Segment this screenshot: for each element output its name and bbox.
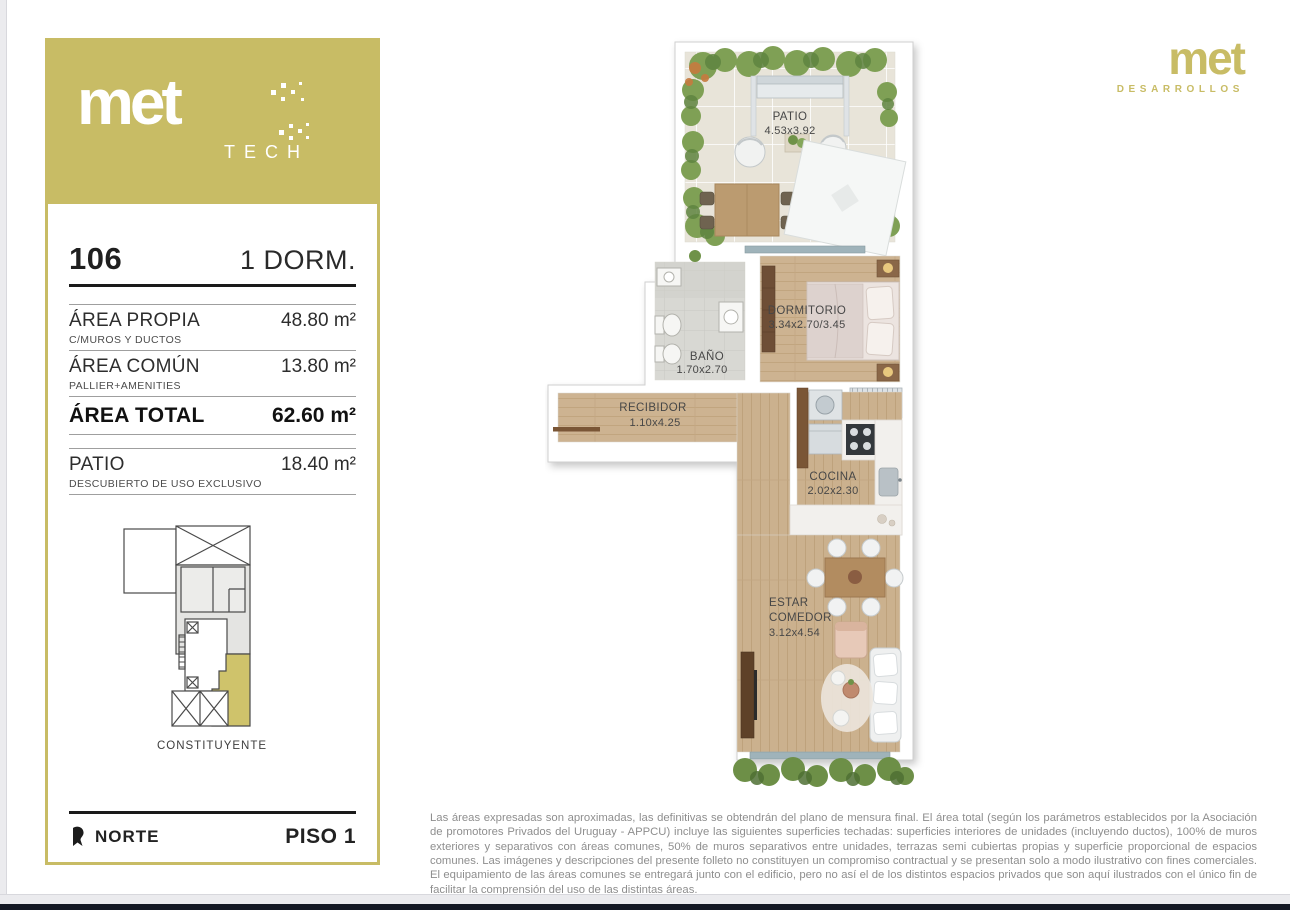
patio-shade-sail: [784, 140, 906, 256]
brochure-page: met TECH 106 1 DORM. ÁREA PROPIA 48.80 m…: [0, 0, 1290, 910]
divider: [69, 284, 356, 287]
north-label: NORTE: [95, 827, 160, 847]
room-dims: 4.53x3.92: [764, 125, 815, 137]
room-dims: 1.10x4.25: [629, 417, 680, 429]
room-label: PATIO: [773, 111, 808, 123]
area-label: ÁREA PROPIA: [69, 310, 200, 332]
room-label: BAÑO: [690, 350, 724, 363]
rug-and-tables: [821, 664, 873, 732]
area-row-propia: ÁREA PROPIA 48.80 m²: [69, 305, 356, 334]
area-row-patio: PATIO 18.40 m²: [69, 449, 356, 478]
unit-info-panel: met TECH 106 1 DORM. ÁREA PROPIA 48.80 m…: [45, 38, 380, 865]
area-row-comun: ÁREA COMÚN 13.80 m²: [69, 351, 356, 380]
passage-floor: [737, 393, 790, 538]
armchair: [835, 622, 867, 658]
sidebar-footer: NORTE PISO 1: [69, 811, 356, 849]
viewer-bottom-bar: [0, 904, 1290, 910]
room-dims: 2.02x2.30: [807, 485, 858, 497]
met-desarrollos-logo-text: met: [1117, 38, 1244, 79]
sofa: [870, 648, 901, 742]
area-label: ÁREA TOTAL: [69, 404, 205, 428]
street-label: CONSTITUYENTE: [156, 740, 266, 752]
pixel-dots-icon: [269, 80, 311, 106]
room-dims: 3.12x4.54: [769, 627, 820, 639]
room-dims: 1.70x2.70: [676, 364, 727, 376]
unit-number: 106: [69, 241, 122, 277]
desarrollos-label: DESARROLLOS: [1117, 84, 1244, 95]
pixel-dots-icon: [279, 122, 321, 144]
site-key-plan: CONSTITUYENTE: [69, 519, 356, 762]
sliding-door: [745, 246, 865, 253]
area-value: 13.80 m²: [281, 356, 356, 378]
page-edge-bottom: [0, 894, 1290, 904]
met-logo-sub: TECH: [77, 142, 309, 163]
met-logo: met: [77, 70, 179, 134]
room-dims: 3.34x2.70/3.45: [769, 319, 846, 331]
page-edge-left: [0, 0, 7, 910]
area-note: DESCUBIERTO DE USO EXCLUSIVO: [69, 478, 356, 494]
area-row-total: ÁREA TOTAL 62.60 m²: [69, 397, 356, 434]
met-tech-logo-block: met TECH: [47, 40, 378, 204]
floor-plan: PATIO 4.53x3.92 BAÑO 1.70x2.70: [545, 30, 945, 800]
north-icon: [69, 826, 86, 848]
developer-logo: met DESARROLLOS: [1117, 38, 1244, 95]
plant: [689, 250, 701, 262]
area-label: PATIO: [69, 454, 125, 476]
divider: [69, 494, 356, 495]
room-label: DORMITORIO: [768, 305, 847, 317]
entry-door: [553, 427, 600, 432]
room-label: COMEDOR: [769, 612, 832, 624]
site-key-plan-drawing: CONSTITUYENTE: [95, 519, 331, 757]
exterior-greenery: [733, 757, 914, 787]
unit-type: 1 DORM.: [240, 245, 356, 276]
window: [750, 752, 890, 759]
room-label: RECIBIDOR: [619, 402, 687, 414]
area-value: 62.60 m²: [272, 404, 356, 428]
area-value: 48.80 m²: [281, 310, 356, 332]
floor-label: PISO 1: [285, 825, 356, 849]
area-note: C/MUROS Y DUCTOS: [69, 334, 356, 350]
area-label: ÁREA COMÚN: [69, 356, 200, 378]
room-label: COCINA: [809, 471, 856, 483]
room-label: ESTAR: [769, 597, 809, 609]
legal-disclaimer: Las áreas expresadas son aproximadas, la…: [430, 811, 1257, 897]
area-value: 18.40 m²: [281, 454, 356, 476]
met-logo-text: met: [77, 66, 179, 138]
area-note: PALLIER+AMENITIES: [69, 380, 356, 396]
